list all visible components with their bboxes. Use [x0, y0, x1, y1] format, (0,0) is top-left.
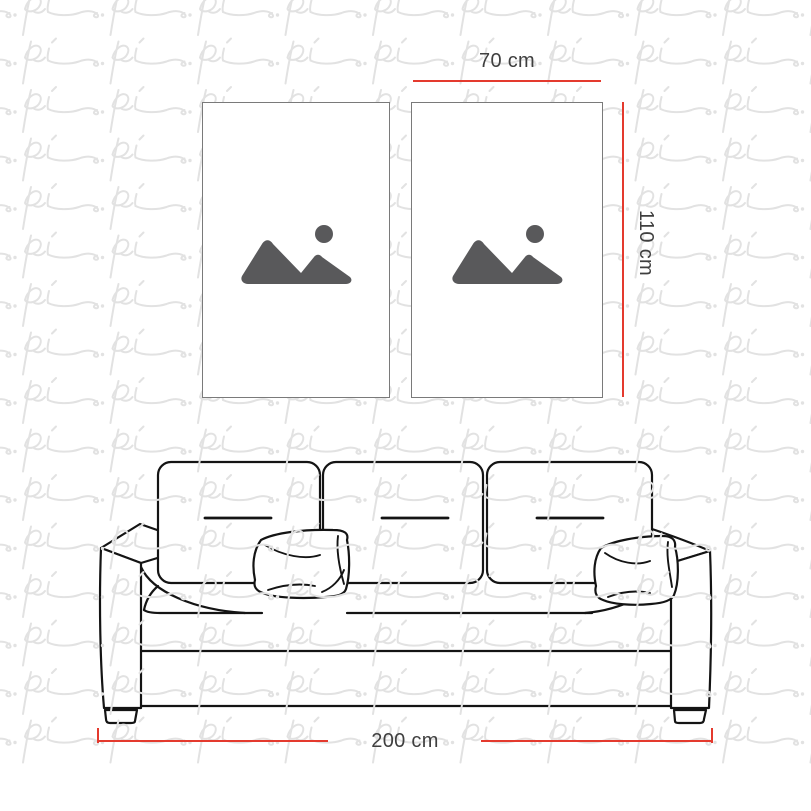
sofa-width-label: 200 cm — [97, 730, 713, 752]
watermark-pattern — [0, 0, 811, 811]
artwork-frame-left — [202, 102, 390, 398]
frame-height-dimension-line — [622, 102, 624, 397]
sofa-width-dimension: 200 cm — [97, 728, 713, 745]
artwork-frame-right — [411, 102, 603, 398]
frame-width-label: 70 cm — [413, 50, 601, 72]
size-guide-diagram: 70 cm 110 cm 200 cm — [0, 0, 811, 811]
image-placeholder-icon — [449, 224, 565, 284]
frame-height-label: 110 cm — [635, 208, 657, 278]
image-placeholder-icon — [238, 224, 354, 284]
frame-width-dimension-line — [413, 80, 601, 82]
